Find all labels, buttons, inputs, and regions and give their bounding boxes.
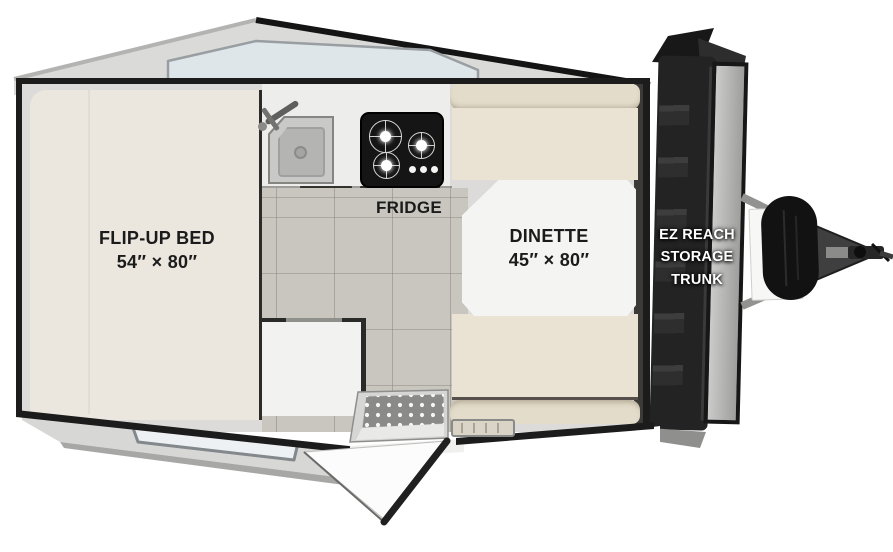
camper-floorplan: DINETTE 45″ × 80″ FLIP-UP BED 54″ × 80″ … — [0, 0, 893, 552]
dinette-label-line2: 45″ × 80″ — [509, 248, 590, 272]
dinette-bench-back-bottom — [450, 400, 640, 424]
storage-cabinet — [262, 318, 366, 416]
bed-label: FLIP-UP BED 54″ × 80″ — [47, 226, 267, 275]
dinette-bench-back-top — [450, 84, 640, 110]
knob-dot-icon — [409, 166, 416, 173]
sink-drain — [294, 146, 307, 159]
propane-tank-cover — [760, 195, 820, 301]
trunk-label-line3: TRUNK — [649, 269, 745, 291]
door-threshold — [350, 439, 464, 459]
bed-label-line2: 54″ × 80″ — [47, 250, 267, 274]
burner-icon — [408, 132, 435, 159]
hitch-coupler — [848, 246, 884, 259]
dinette-label-line1: DINETTE — [509, 224, 590, 248]
knob-dot-icon — [420, 166, 427, 173]
dinette-bench-seat-bottom — [452, 314, 638, 400]
burner-icon — [369, 120, 402, 153]
entry-door-open — [304, 441, 447, 521]
knob-dot-icon — [431, 166, 438, 173]
trunk-label-line2: STORAGE — [649, 246, 745, 268]
cooktop-stove — [360, 112, 444, 188]
coupler-plate — [816, 226, 880, 280]
dinette-label: DINETTE 45″ × 80″ — [509, 224, 590, 273]
dinette-bench-seat-top — [452, 108, 638, 180]
bed-label-line1: FLIP-UP BED — [47, 226, 267, 250]
burner-icon — [373, 152, 400, 179]
faucet-knob-icon — [258, 122, 267, 131]
fridge-label: FRIDGE — [359, 198, 459, 218]
trunk-label: EZ REACH STORAGE TRUNK — [649, 224, 745, 291]
stove-knobs — [409, 166, 438, 173]
trunk-label-line1: EZ REACH — [649, 224, 745, 246]
dinette-table: DINETTE 45″ × 80″ — [462, 180, 636, 316]
